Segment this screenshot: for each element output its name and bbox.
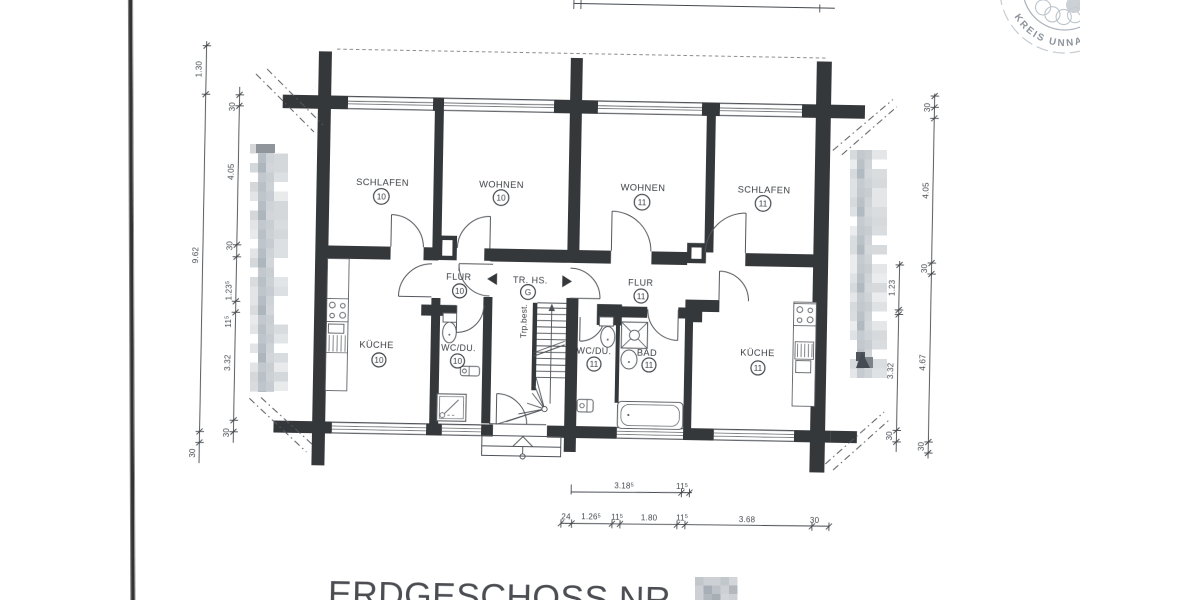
svg-text:4.05: 4.05 xyxy=(921,182,930,199)
svg-text:SCHLAFEN: SCHLAFEN xyxy=(738,184,791,195)
svg-text:WC/DU.: WC/DU. xyxy=(577,346,612,357)
svg-text:10: 10 xyxy=(496,194,506,203)
svg-text:30: 30 xyxy=(810,516,820,525)
svg-text:11: 11 xyxy=(645,361,654,370)
svg-text:1.23: 1.23 xyxy=(888,279,897,296)
svg-text:1.80: 1.80 xyxy=(641,513,658,522)
svg-text:30: 30 xyxy=(222,428,231,438)
svg-text:30: 30 xyxy=(225,241,234,251)
svg-text:WOHNEN: WOHNEN xyxy=(621,182,666,193)
svg-text:10: 10 xyxy=(455,287,465,296)
svg-text:KÜCHE: KÜCHE xyxy=(359,340,394,351)
svg-text:24: 24 xyxy=(561,512,571,521)
svg-text:FLUR: FLUR xyxy=(628,277,653,287)
svg-text:10: 10 xyxy=(377,192,387,201)
svg-text:Trp.best.: Trp.best. xyxy=(518,304,529,338)
svg-text:BAD: BAD xyxy=(637,348,658,358)
svg-text:11: 11 xyxy=(638,198,647,207)
svg-text:WOHNEN: WOHNEN xyxy=(479,179,524,190)
svg-text:KÜCHE: KÜCHE xyxy=(740,348,775,359)
svg-text:10: 10 xyxy=(453,357,463,366)
svg-text:11: 11 xyxy=(637,292,646,301)
svg-text:4.67: 4.67 xyxy=(918,354,927,371)
svg-text:30: 30 xyxy=(188,448,197,458)
svg-text:30: 30 xyxy=(920,263,929,273)
svg-text:3.32: 3.32 xyxy=(223,354,232,371)
svg-text:11: 11 xyxy=(590,360,599,369)
svg-text:9.62: 9.62 xyxy=(191,246,200,263)
svg-text:30: 30 xyxy=(917,441,926,451)
svg-text:1.30: 1.30 xyxy=(195,60,204,77)
svg-text:G: G xyxy=(525,288,532,297)
svg-text:FLUR: FLUR xyxy=(446,272,471,282)
svg-text:10: 10 xyxy=(374,356,384,365)
svg-text:TR. HS.: TR. HS. xyxy=(513,275,548,286)
svg-text:30: 30 xyxy=(885,431,894,441)
svg-text:SCHLAFEN: SCHLAFEN xyxy=(356,177,409,188)
svg-text:WC/DU.: WC/DU. xyxy=(441,343,476,354)
svg-text:4.05: 4.05 xyxy=(226,163,235,180)
svg-text:11: 11 xyxy=(759,199,768,208)
svg-text:30: 30 xyxy=(923,102,932,112)
svg-text:3.32: 3.32 xyxy=(886,362,895,379)
svg-text:30: 30 xyxy=(228,102,237,112)
svg-text:3.68: 3.68 xyxy=(739,515,756,524)
svg-text:11: 11 xyxy=(754,364,763,373)
